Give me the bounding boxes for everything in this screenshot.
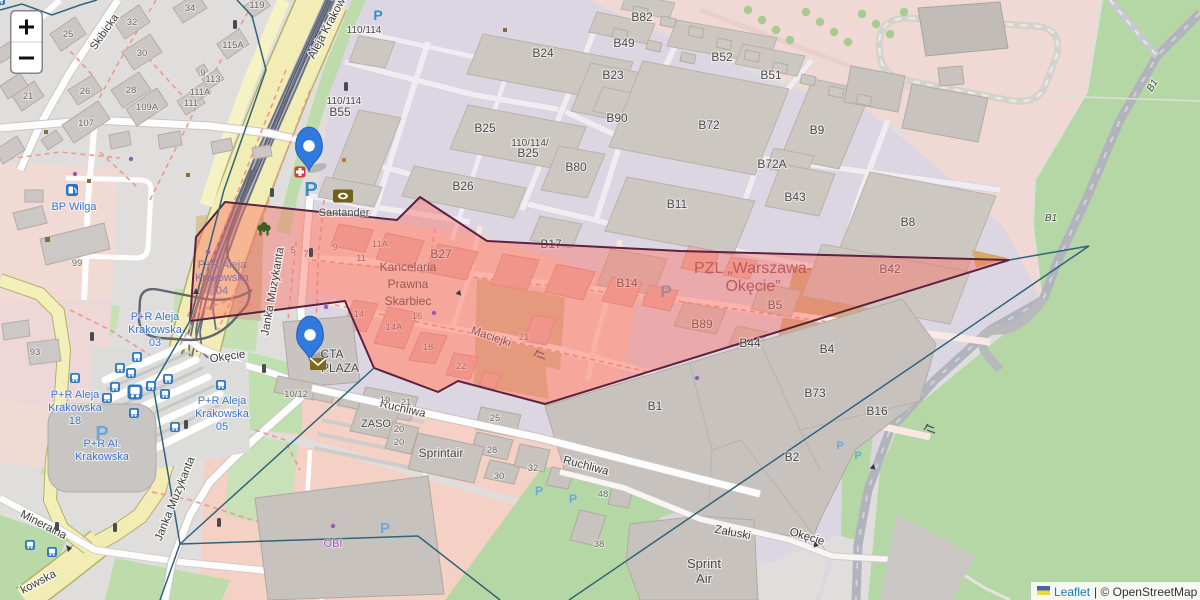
svg-text:111A: 111A xyxy=(190,87,211,98)
svg-text:B8: B8 xyxy=(901,215,916,229)
svg-text:B25: B25 xyxy=(517,146,539,160)
svg-text:P: P xyxy=(373,7,382,23)
svg-text:P+R Aleja: P+R Aleja xyxy=(51,389,100,401)
svg-text:| © OpenStreetMap: | © OpenStreetMap xyxy=(1094,585,1198,599)
svg-text:03: 03 xyxy=(149,337,161,349)
svg-text:18: 18 xyxy=(69,415,81,427)
svg-text:30: 30 xyxy=(137,48,148,59)
svg-text:28: 28 xyxy=(126,85,137,96)
svg-text:B16: B16 xyxy=(866,404,888,418)
svg-text:110/114: 110/114 xyxy=(347,25,382,36)
svg-text:B1: B1 xyxy=(648,399,663,413)
svg-text:B23: B23 xyxy=(602,68,624,82)
svg-text:20: 20 xyxy=(394,424,405,435)
svg-text:32: 32 xyxy=(127,17,138,28)
svg-text:B73: B73 xyxy=(804,386,826,400)
svg-text:B80: B80 xyxy=(565,160,587,174)
svg-text:10/12: 10/12 xyxy=(284,389,308,400)
svg-text:P: P xyxy=(569,492,577,506)
svg-text:B72: B72 xyxy=(698,118,720,132)
svg-text:Leaflet: Leaflet xyxy=(1054,585,1091,599)
svg-text:B25: B25 xyxy=(474,121,496,135)
svg-text:34: 34 xyxy=(185,3,196,14)
svg-text:B82: B82 xyxy=(631,10,653,24)
svg-text:B9: B9 xyxy=(810,123,825,137)
svg-text:B11: B11 xyxy=(667,197,688,211)
svg-text:Krakowska: Krakowska xyxy=(48,402,103,414)
svg-text:32: 32 xyxy=(528,463,539,474)
svg-text:109A: 109A xyxy=(136,102,159,113)
svg-text:B43: B43 xyxy=(784,190,806,204)
svg-text:B2: B2 xyxy=(785,450,800,464)
svg-text:21: 21 xyxy=(23,91,34,102)
svg-text:PLAZA: PLAZA xyxy=(321,361,359,375)
svg-text:Air: Air xyxy=(696,571,713,586)
svg-text:B24: B24 xyxy=(532,46,554,60)
svg-text:Sprintair: Sprintair xyxy=(419,446,464,460)
svg-text:B72A: B72A xyxy=(757,157,786,171)
svg-text:115A: 115A xyxy=(222,40,244,51)
svg-text:111: 111 xyxy=(184,98,198,109)
svg-text:P: P xyxy=(380,520,390,537)
svg-text:B26: B26 xyxy=(452,179,474,193)
svg-text:P: P xyxy=(304,179,317,201)
svg-text:Krakowska: Krakowska xyxy=(128,324,183,336)
svg-text:48: 48 xyxy=(598,489,609,500)
svg-text:Santander: Santander xyxy=(319,207,370,219)
svg-text:28: 28 xyxy=(487,445,498,456)
svg-text:P: P xyxy=(836,440,843,452)
svg-text:119: 119 xyxy=(249,0,264,11)
svg-text:B4: B4 xyxy=(820,342,835,356)
svg-text:ZASO: ZASO xyxy=(361,418,391,430)
svg-text:P+R Aleja: P+R Aleja xyxy=(131,311,180,323)
svg-text:Krakowska: Krakowska xyxy=(195,408,250,420)
svg-text:30: 30 xyxy=(494,471,505,482)
svg-text:B1: B1 xyxy=(1045,213,1057,224)
svg-text:99: 99 xyxy=(72,258,83,269)
svg-text:P: P xyxy=(95,423,108,445)
svg-text:05: 05 xyxy=(216,421,228,433)
svg-text:B49: B49 xyxy=(613,36,635,50)
svg-text:107: 107 xyxy=(78,118,94,129)
svg-text:B44: B44 xyxy=(739,336,761,350)
svg-text:Sprint: Sprint xyxy=(687,556,721,571)
svg-text:25: 25 xyxy=(490,413,501,424)
svg-text:OBI: OBI xyxy=(324,538,343,550)
svg-text:9: 9 xyxy=(200,68,205,79)
svg-text:P+R Aleja: P+R Aleja xyxy=(198,395,247,407)
svg-text:B51: B51 xyxy=(760,68,782,82)
svg-text:Krakowska: Krakowska xyxy=(75,451,130,463)
svg-text:B52: B52 xyxy=(711,50,733,64)
svg-text:20: 20 xyxy=(394,437,405,448)
svg-text:38: 38 xyxy=(594,539,605,550)
svg-text:113: 113 xyxy=(205,74,220,85)
svg-text:P: P xyxy=(854,450,861,462)
svg-text:B55: B55 xyxy=(329,105,351,119)
svg-text:21: 21 xyxy=(401,397,412,408)
svg-text:19: 19 xyxy=(380,395,391,406)
svg-text:B90: B90 xyxy=(606,111,628,125)
svg-text:P: P xyxy=(535,484,543,498)
svg-text:25: 25 xyxy=(63,29,74,40)
svg-text:26: 26 xyxy=(80,86,91,97)
svg-text:93: 93 xyxy=(30,347,41,358)
svg-text:BP Wilga: BP Wilga xyxy=(51,201,97,213)
